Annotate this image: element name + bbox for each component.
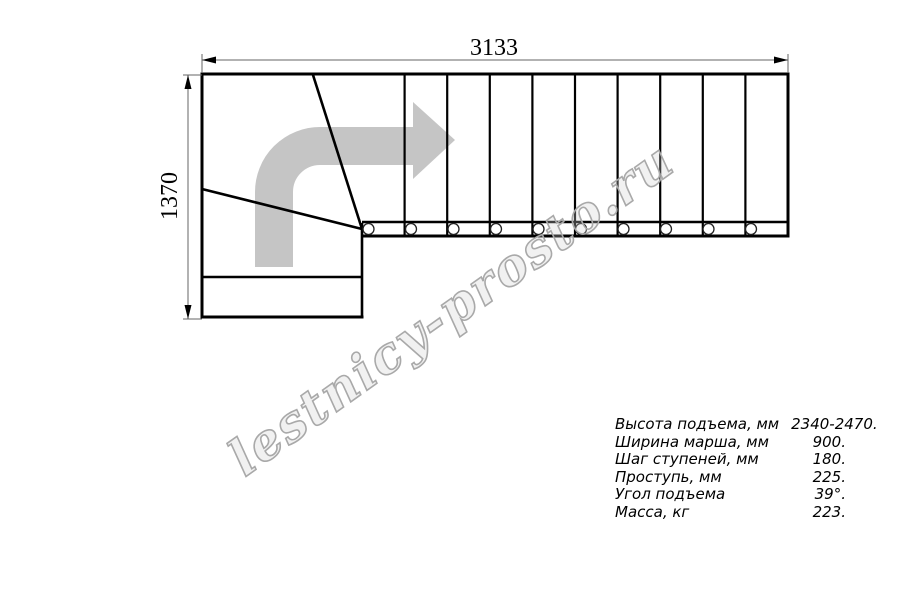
spec-label: Проступь, мм [615, 469, 722, 487]
spec-label: Угол подъема [615, 486, 725, 504]
spec-row: Шаг ступеней, мм 180. [615, 451, 846, 469]
dimension-arrow-left [202, 57, 216, 64]
direction-arrow-head [413, 102, 455, 179]
spec-row: Угол подъема 39°. [615, 486, 846, 504]
spec-value: 2340-2470. [791, 416, 878, 434]
spec-value: 223. [813, 504, 846, 522]
direction-arrow-body [274, 146, 413, 267]
dimension-height-label: 1370 [157, 172, 183, 220]
direction-arrow [274, 102, 455, 267]
spec-value: 180. [813, 451, 846, 469]
pin-circle [448, 224, 459, 235]
spec-label: Шаг ступеней, мм [615, 451, 759, 469]
spec-row: Высота подъема, мм 2340-2470. [615, 416, 846, 434]
spec-row: Ширина марша, мм 900. [615, 434, 846, 452]
dimension-height: 1370 [157, 75, 202, 319]
pin-circle [703, 224, 714, 235]
dimension-width: 3133 [202, 35, 788, 73]
pin-circle [406, 224, 417, 235]
spec-label: Высота подъема, мм [615, 416, 779, 434]
dimension-width-label: 3133 [470, 35, 518, 61]
spec-row: Проступь, мм 225. [615, 469, 846, 487]
dimension-arrow-top [185, 75, 192, 89]
pin-circle [746, 224, 757, 235]
pin-circle [618, 224, 629, 235]
spec-value: 39°. [815, 486, 846, 504]
spec-value: 900. [813, 434, 846, 452]
spec-table: Высота подъема, мм 2340-2470. Ширина мар… [615, 416, 846, 522]
pin-circle [363, 224, 374, 235]
spec-value: 225. [813, 469, 846, 487]
dimension-arrow-right [774, 57, 788, 64]
pin-circle [661, 224, 672, 235]
spec-label: Ширина марша, мм [615, 434, 769, 452]
spec-row: Масса, кг 223. [615, 504, 846, 522]
spec-label: Масса, кг [615, 504, 689, 522]
dimension-arrow-bottom [185, 305, 192, 319]
pin-circle [491, 224, 502, 235]
